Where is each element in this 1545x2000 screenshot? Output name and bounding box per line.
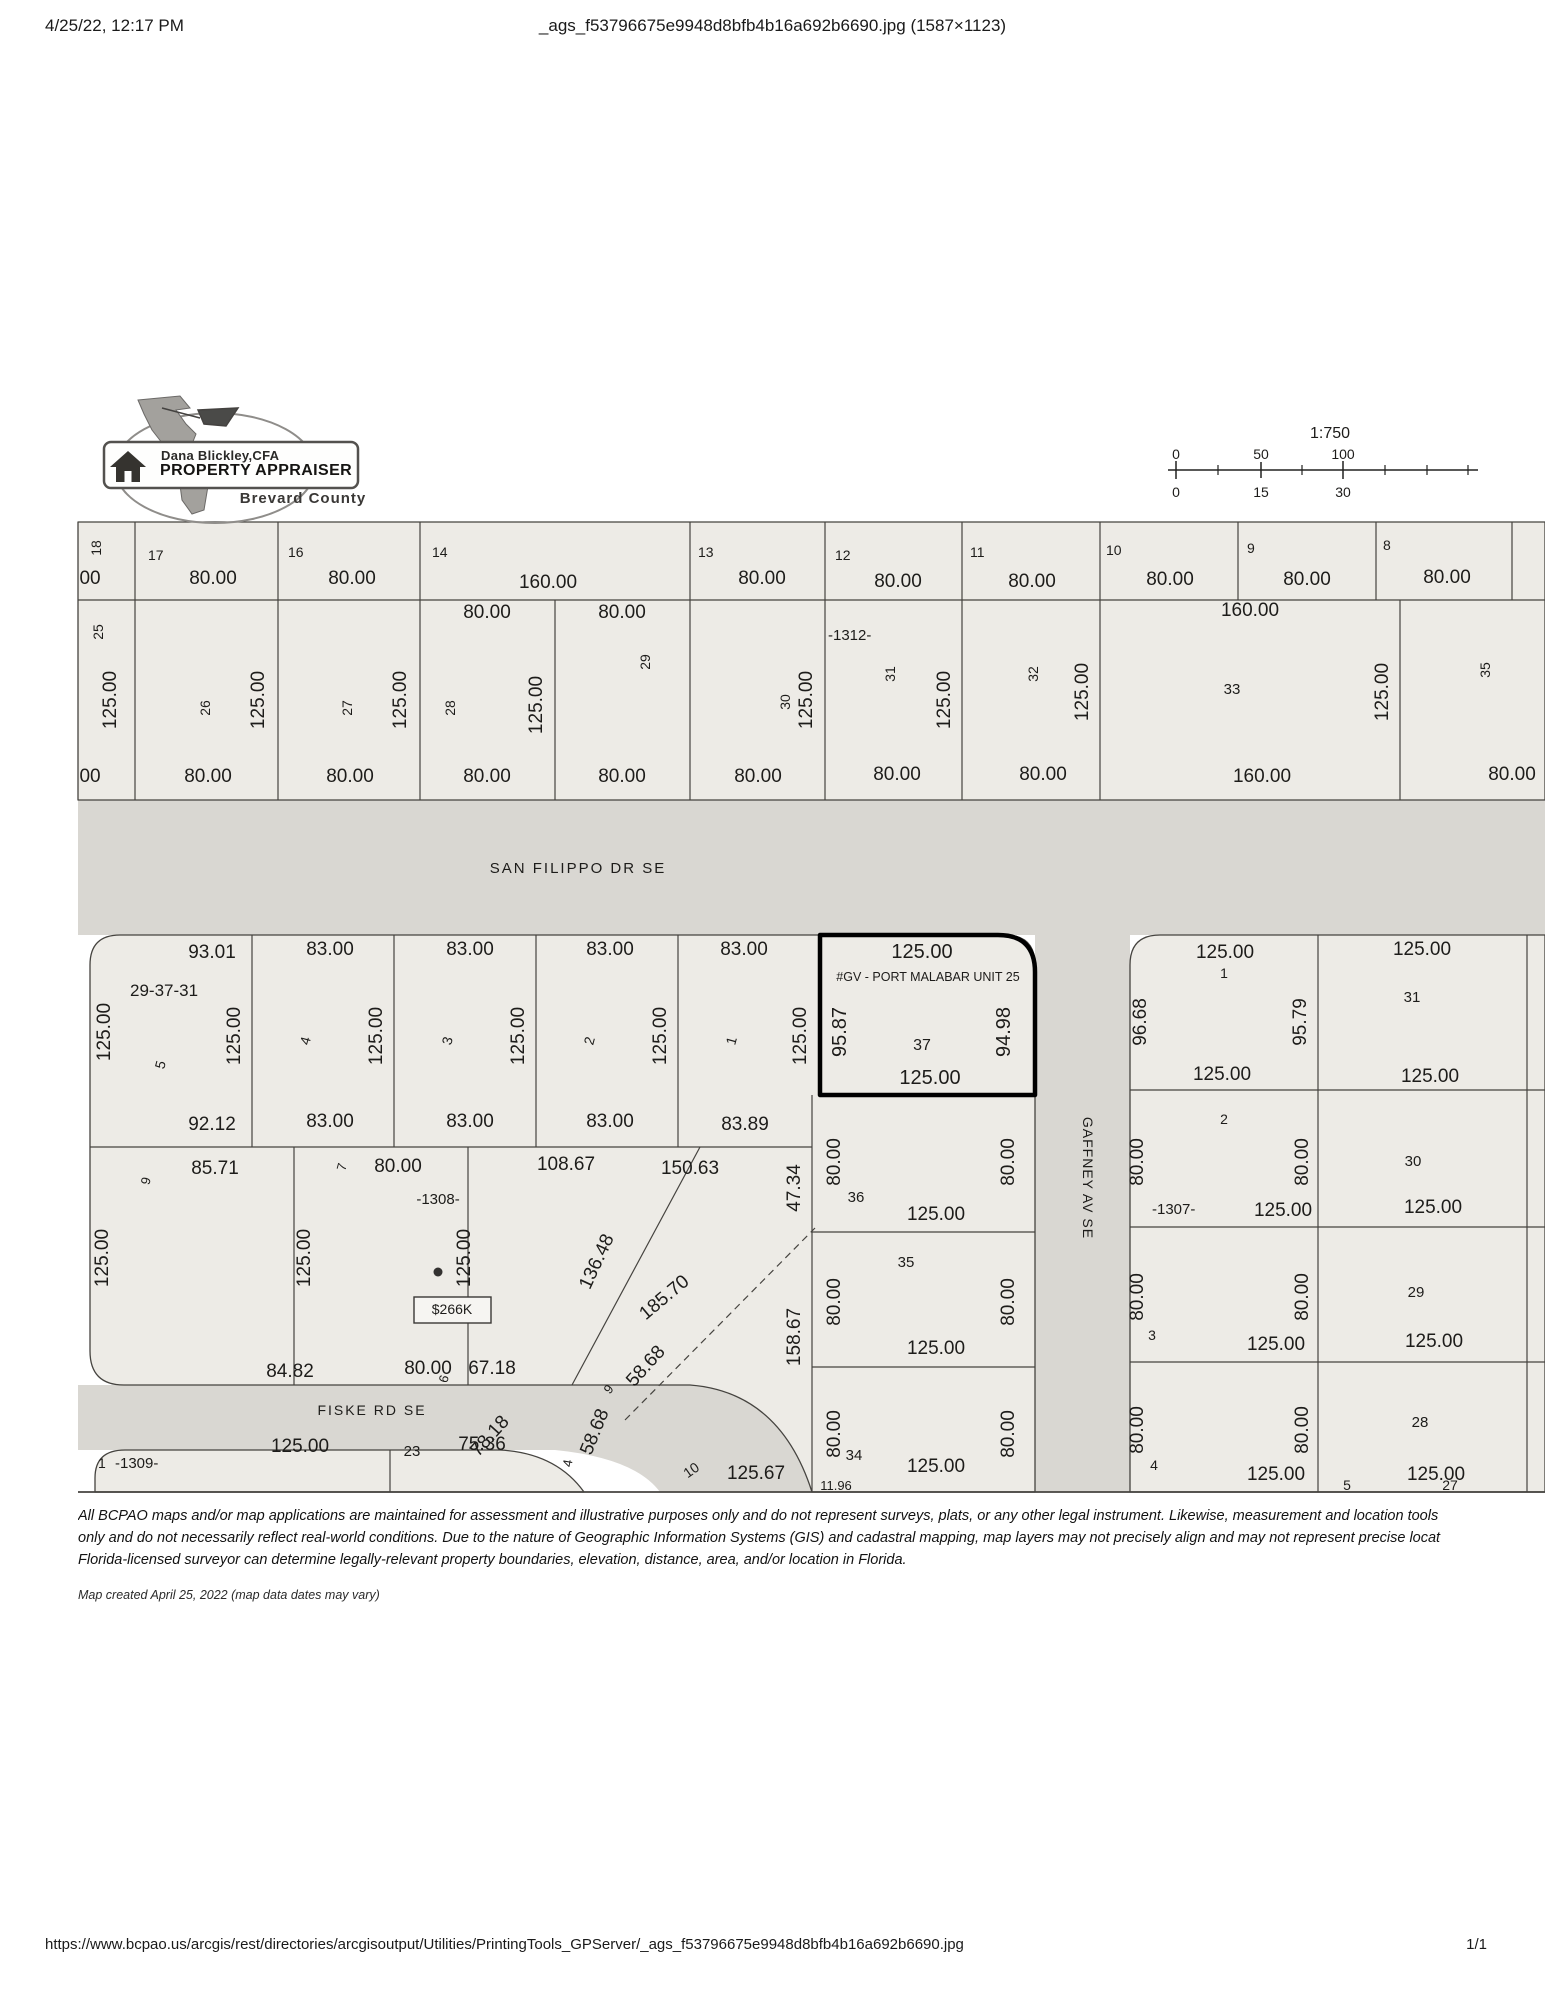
map-label: 80.00	[1292, 1273, 1313, 1321]
map-label: 10	[1106, 542, 1122, 558]
map-label: 80.00	[1008, 571, 1056, 592]
map-label: 80.00	[1127, 1138, 1148, 1186]
map-label: 80.00	[874, 571, 922, 592]
scale-bottom-15: 15	[1253, 484, 1269, 500]
road-label-san-filippo: SAN FILIPPO DR SE	[490, 860, 667, 877]
map-label: 125.00	[907, 1456, 965, 1477]
map-label: 8	[1383, 537, 1391, 553]
map-label: 16	[288, 544, 304, 560]
map-label: 83.00	[446, 939, 494, 960]
map-label: 28	[442, 700, 458, 716]
map-label: 150.63	[661, 1158, 719, 1179]
selected-parcel-front-dim: 125.00	[891, 941, 952, 963]
map-label: 4	[560, 1458, 576, 1468]
map-label: 3	[1148, 1327, 1156, 1343]
map-label: 80.00	[184, 766, 232, 787]
map-label: 80.00	[824, 1410, 845, 1458]
map-label: 125.00	[1254, 1200, 1312, 1221]
map-label: 83.00	[586, 939, 634, 960]
map-label: 34	[846, 1447, 863, 1464]
map-label: 80.00	[1127, 1273, 1148, 1321]
map-label: 80.00	[463, 602, 511, 623]
map-label: 80.00	[1488, 764, 1536, 785]
map-label: 125.00	[454, 1229, 475, 1287]
block-north	[78, 522, 1545, 800]
map-label: 29	[1408, 1284, 1425, 1301]
map-label: 83.00	[720, 939, 768, 960]
disclaimer-line-1: All BCPAO maps and/or map applications a…	[78, 1505, 1545, 1527]
map-label: 80.00	[1127, 1406, 1148, 1454]
block-label-1312: -1312-	[828, 627, 871, 644]
map-label: 27	[339, 700, 355, 716]
map-label: 80.00	[998, 1410, 1019, 1458]
section-township-range-label: 29-37-31	[130, 981, 198, 1000]
map-label: 13	[698, 544, 714, 560]
map-label: 125.00	[100, 671, 121, 729]
map-label: 80.00	[463, 766, 511, 787]
map-label: 18	[88, 540, 104, 556]
map-label: 80.00	[734, 766, 782, 787]
map-label: 2	[1220, 1111, 1228, 1127]
map-label: 160.00	[1221, 600, 1279, 621]
map-label: 80.00	[374, 1156, 422, 1177]
map-label: 125.00	[1393, 939, 1451, 960]
map-label: 125.00	[1404, 1197, 1462, 1218]
map-label: 125.00	[224, 1007, 245, 1065]
map-label: 1	[1220, 965, 1228, 981]
map-label: 95.87	[829, 1007, 851, 1057]
scale-bottom-0: 0	[1172, 484, 1180, 500]
map-label: 12	[835, 547, 851, 563]
map-label: 75.36	[458, 1434, 506, 1455]
map-label: 17	[148, 547, 164, 563]
scale-top-0: 0	[1172, 446, 1180, 462]
map-label: 35	[898, 1254, 915, 1271]
disclaimer-line-2: only and do not necessarily reflect real…	[78, 1527, 1545, 1549]
map-label: 80.00	[824, 1278, 845, 1326]
logo-county-name: Brevard County	[188, 490, 418, 507]
map-label: 80.00	[998, 1278, 1019, 1326]
map-label: 80.00	[1292, 1138, 1313, 1186]
map-label: 35	[1477, 662, 1493, 678]
map-label: 80.00	[738, 568, 786, 589]
map-created-note: Map created April 25, 2022 (map data dat…	[78, 1588, 380, 1602]
map-label: 125.00	[366, 1007, 387, 1065]
road-label-fiske: FISKE RD SE	[317, 1402, 426, 1418]
map-label: 00	[79, 766, 100, 787]
map-label: 125.00	[1072, 663, 1093, 721]
map-label: 5	[1343, 1477, 1351, 1493]
map-label: 125.00	[390, 671, 411, 729]
map-label: 32	[1025, 666, 1041, 682]
map-label: 125.00	[1401, 1066, 1459, 1087]
map-label: 83.00	[586, 1111, 634, 1132]
map-label: 25	[90, 624, 106, 640]
map-label: 33	[1224, 681, 1241, 698]
map-label: 80.00	[598, 602, 646, 623]
map-label: 29	[637, 654, 653, 670]
sale-marker-dot	[434, 1268, 443, 1277]
map-label: 80.00	[873, 764, 921, 785]
map-label: 31	[882, 666, 898, 682]
map-label: 85.71	[191, 1158, 239, 1179]
map-label: 125.67	[727, 1463, 785, 1484]
map-label: 36	[848, 1189, 865, 1206]
map-label: 80.00	[1423, 567, 1471, 588]
map-label: 83.89	[721, 1114, 769, 1135]
map-label: 83.00	[306, 939, 354, 960]
road-san-filippo	[78, 800, 1545, 935]
map-label: 125.00	[1247, 1464, 1305, 1485]
map-disclaimer: All BCPAO maps and/or map applications a…	[78, 1505, 1545, 1571]
map-label: 11.96	[820, 1478, 852, 1493]
block-label-1308: -1308-	[416, 1191, 459, 1208]
selected-parcel-rear-dim: 125.00	[899, 1067, 960, 1089]
map-label: 80.00	[1283, 569, 1331, 590]
map-label: 80.00	[598, 766, 646, 787]
map-label: 00	[79, 568, 100, 589]
map-label: 26	[197, 700, 213, 716]
scale-bottom-30: 30	[1335, 484, 1351, 500]
map-label: 125.00	[271, 1436, 329, 1457]
map-label: 125.00	[650, 1007, 671, 1065]
map-label: 80.00	[1019, 764, 1067, 785]
map-label: 125.00	[248, 671, 269, 729]
subdivision-label: #GV - PORT MALABAR UNIT 25	[836, 970, 1019, 984]
map-label: 80.00	[824, 1138, 845, 1186]
map-label: 94.98	[993, 1007, 1015, 1057]
map-label: 80.00	[326, 766, 374, 787]
map-label: 14	[432, 544, 448, 560]
map-label: 125.00	[508, 1007, 529, 1065]
printed-page: { "page": { "header": { "date": "4/25/22…	[0, 0, 1545, 2000]
map-label: 125.00	[294, 1229, 315, 1287]
map-label: 92.12	[188, 1114, 236, 1135]
map-label: 31	[1404, 989, 1421, 1006]
map-label: 125.00	[934, 671, 955, 729]
map-label: 125.00	[1247, 1334, 1305, 1355]
map-label: 96.68	[1130, 998, 1151, 1046]
map-label: 11	[970, 544, 985, 560]
disclaimer-line-3: Florida-licensed surveyor can determine …	[78, 1549, 1545, 1571]
map-label: 67.18	[468, 1358, 516, 1379]
map-label: 125.00	[796, 671, 817, 729]
map-label: 1	[98, 1455, 106, 1471]
map-label: 30	[1405, 1153, 1422, 1170]
block-label-1309: -1309-	[115, 1455, 158, 1472]
map-label: 125.00	[790, 1007, 811, 1065]
map-label: 30	[777, 694, 793, 710]
map-label: 160.00	[519, 572, 577, 593]
map-label: 23	[404, 1443, 421, 1460]
map-label: 158.67	[784, 1308, 805, 1366]
block-south-1309	[95, 1450, 584, 1492]
map-label: 47.34	[784, 1164, 805, 1212]
map-label: 125.00	[907, 1338, 965, 1359]
map-label: 4	[1150, 1457, 1158, 1473]
logo-office-title: PROPERTY APPRAISER	[160, 462, 352, 480]
map-label: 108.67	[537, 1154, 595, 1175]
sale-price-callout-text: $266K	[432, 1301, 473, 1317]
map-label: 83.00	[446, 1111, 494, 1132]
map-label: 27	[1442, 1477, 1458, 1493]
map-label: 93.01	[188, 942, 236, 963]
map-label: 84.82	[266, 1361, 314, 1382]
print-footer-url: https://www.bcpao.us/arcgis/rest/directo…	[45, 1936, 964, 1953]
map-label: 80.00	[189, 568, 237, 589]
print-footer-page-indicator: 1/1	[1466, 1936, 1487, 1953]
logo-appraiser-name: Dana Blickley,CFA	[161, 448, 279, 463]
scale-top-50: 50	[1253, 446, 1269, 462]
map-label: 95.79	[1290, 998, 1311, 1046]
scale-top-100: 100	[1331, 446, 1355, 462]
map-label: 80.00	[998, 1138, 1019, 1186]
block-label-1307: -1307-	[1152, 1201, 1195, 1218]
map-label: 125.00	[1196, 942, 1254, 963]
selected-parcel-number: 37	[913, 1037, 931, 1054]
map-label: 125.00	[94, 1003, 115, 1061]
map-label: 125.00	[92, 1229, 113, 1287]
map-label: 9	[1247, 540, 1255, 556]
scale-bar	[1168, 461, 1478, 479]
map-label: 125.00	[907, 1204, 965, 1225]
map-label: 80.00	[1292, 1406, 1313, 1454]
parcel-map: 1:7500501000153018001780.001680.0014160.…	[0, 0, 1545, 2000]
map-label: 125.00	[1372, 663, 1393, 721]
map-label: 125.00	[1405, 1331, 1463, 1352]
map-label: 80.00	[328, 568, 376, 589]
scale-ratio: 1:750	[1310, 425, 1350, 442]
map-label: 125.00	[1193, 1064, 1251, 1085]
map-label: 160.00	[1233, 766, 1291, 787]
map-label: 80.00	[1146, 569, 1194, 590]
road-label-gaffney: GAFFNEY AV SE	[1080, 1117, 1096, 1239]
map-label: 83.00	[306, 1111, 354, 1132]
map-label: 125.00	[526, 676, 547, 734]
map-label: 28	[1412, 1414, 1429, 1431]
